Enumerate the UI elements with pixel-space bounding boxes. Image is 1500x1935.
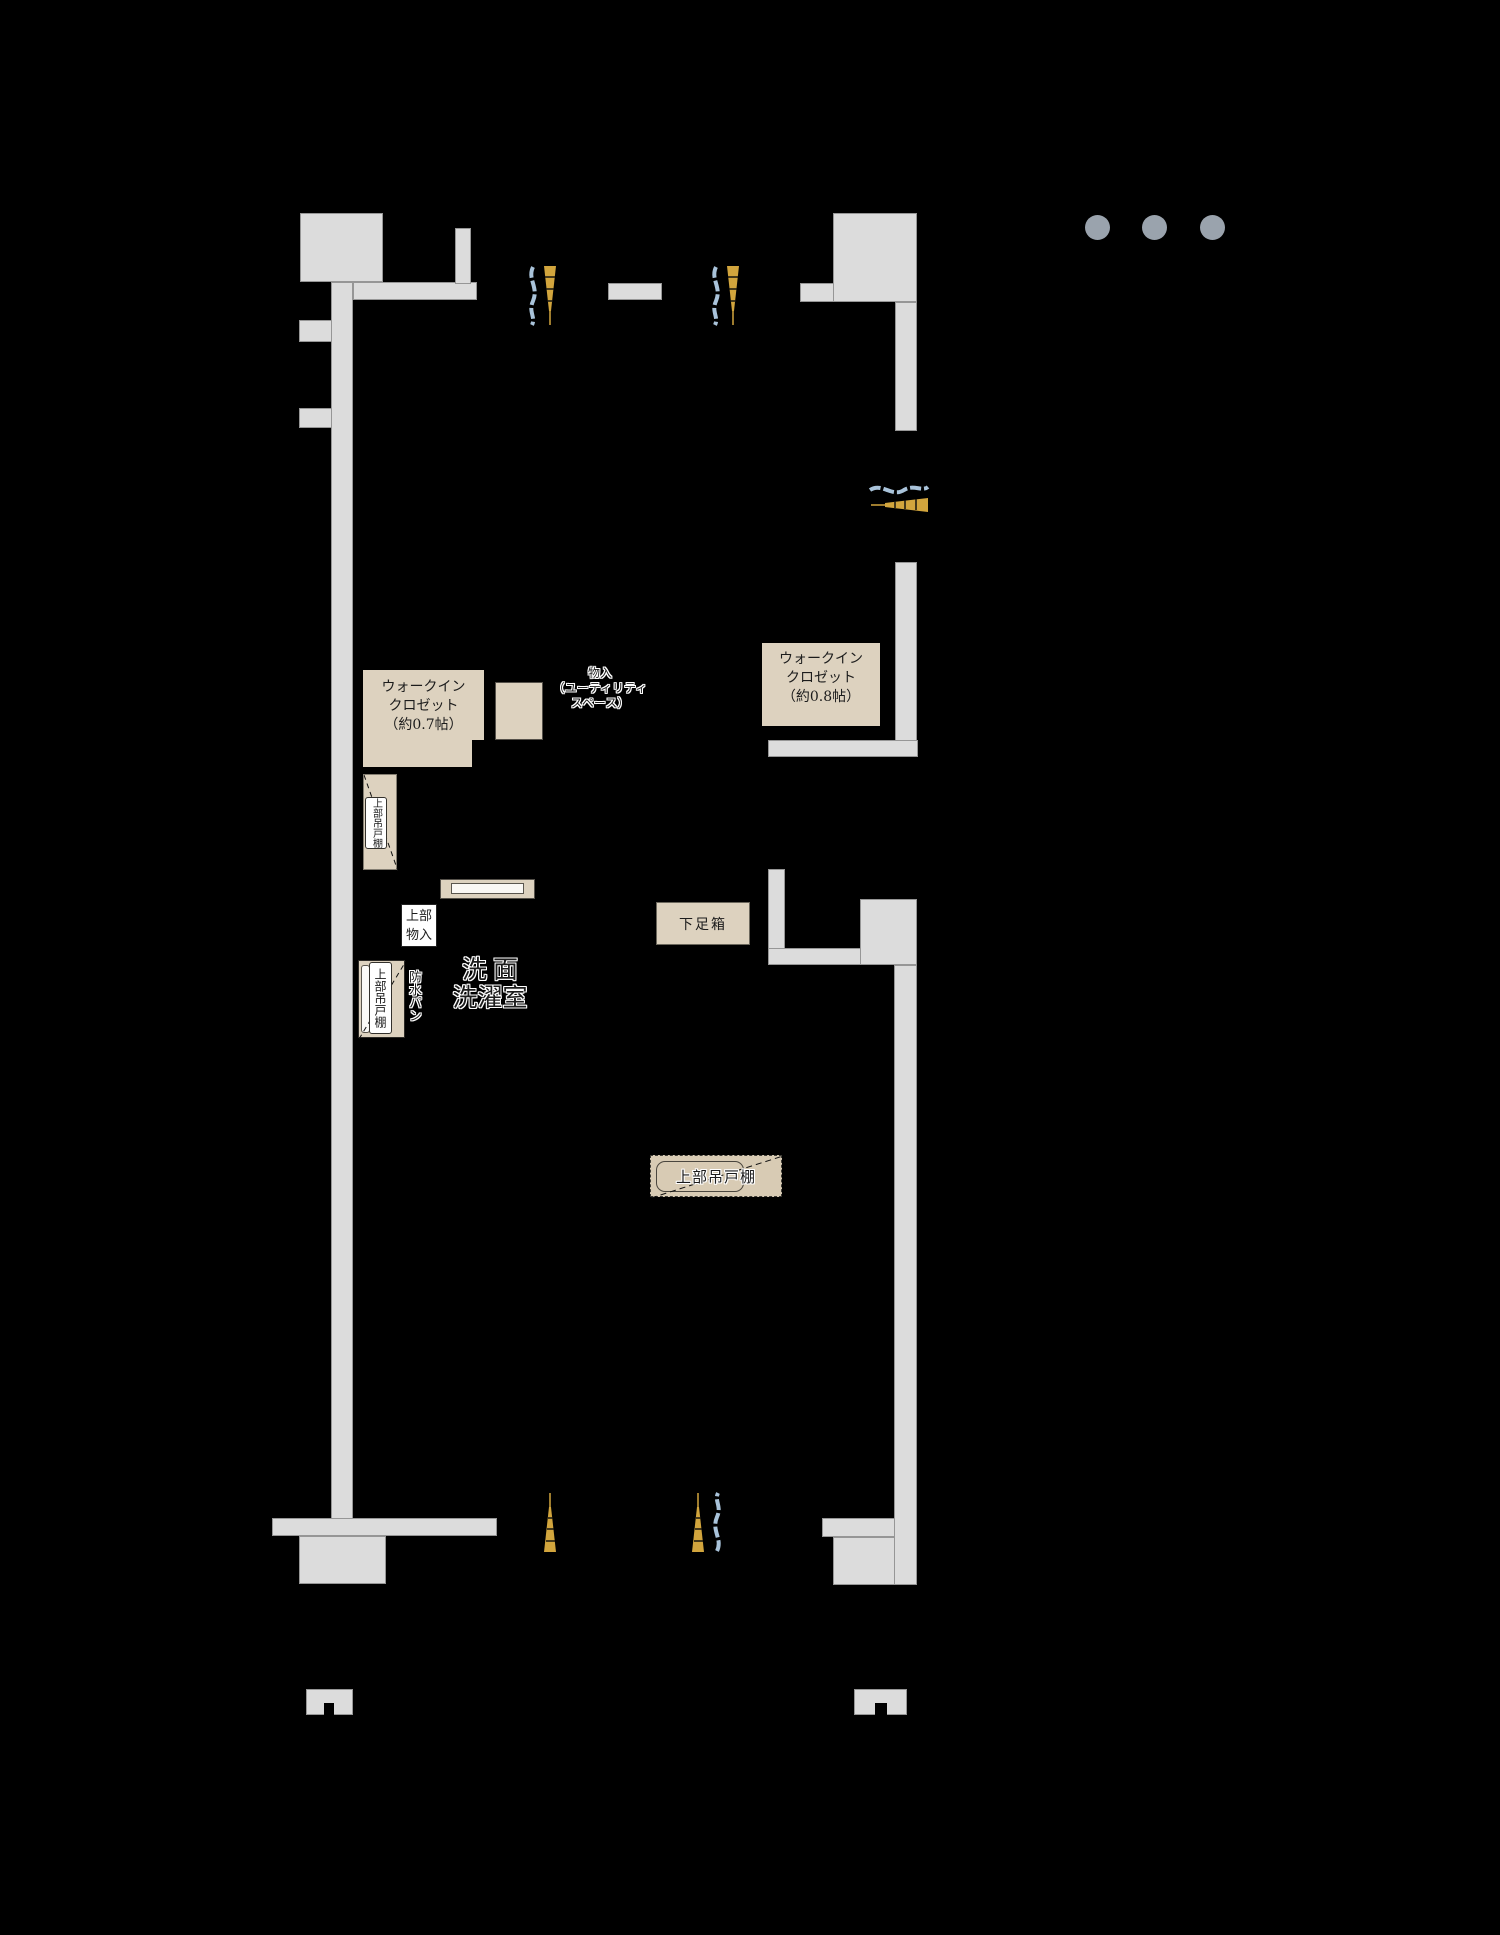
- window-symbol: [707, 265, 743, 327]
- walk-in-closet-left-label: ウォークイン クロゼット （約0.7帖）: [363, 678, 484, 735]
- door-symbol: [542, 1491, 558, 1553]
- shoe-box-label: 下足箱: [679, 914, 727, 934]
- hanging-cabinet-kitchen-label: 上部吊戸棚: [676, 1166, 756, 1187]
- wall-segment: [833, 213, 917, 302]
- wall-segment: [299, 320, 332, 342]
- window-symbol-horizontal: [868, 478, 930, 516]
- wall-segment: [895, 562, 917, 757]
- washroom-label: 洗面 洗濯室: [420, 956, 560, 1012]
- wall-segment: [455, 228, 471, 284]
- shoe-box: 下足箱: [656, 902, 750, 945]
- wall-segment: [833, 1537, 895, 1585]
- wall-segment: [800, 283, 834, 302]
- wall-segment: [608, 283, 662, 300]
- wall-pier-notch: [324, 1703, 334, 1716]
- hanging-cabinet-lower-badge: 上部吊戸棚: [369, 962, 392, 1034]
- walk-in-closet-right-label: ウォークイン クロゼット （約0.8帖）: [762, 650, 880, 707]
- storage-box: [495, 682, 543, 740]
- washbasin-counter: [440, 879, 535, 899]
- continuation-dot: [1200, 215, 1225, 240]
- floor-plan: ウォークイン クロゼット （約0.7帖） 物入 （ユーティリティ スペース） ウ…: [0, 0, 1500, 1935]
- wall-segment: [895, 302, 917, 431]
- continuation-dot: [1142, 215, 1167, 240]
- upper-storage-box: 上部 物入: [401, 904, 437, 947]
- wall-segment: [331, 282, 353, 1520]
- wall-segment: [894, 965, 917, 1585]
- wall-pier-notch: [875, 1703, 887, 1716]
- window-symbol: [524, 265, 560, 327]
- wall-segment: [353, 282, 477, 300]
- wall-segment: [822, 1518, 895, 1537]
- hanging-cabinet-kitchen: 上部吊戸棚: [650, 1155, 782, 1197]
- utility-space-label: 物入 （ユーティリティ スペース）: [540, 666, 660, 711]
- wall-segment: [768, 740, 918, 757]
- window-symbol: [690, 1491, 724, 1553]
- wall-segment: [299, 408, 332, 428]
- wall-segment: [300, 213, 383, 282]
- wall-segment: [299, 1536, 386, 1584]
- wall-segment: [272, 1518, 497, 1536]
- hanging-cabinet-upper-badge: 上部吊戸棚: [365, 797, 387, 849]
- continuation-dot: [1085, 215, 1110, 240]
- walk-in-closet-left-notch: [472, 740, 484, 767]
- wall-segment: [860, 899, 917, 965]
